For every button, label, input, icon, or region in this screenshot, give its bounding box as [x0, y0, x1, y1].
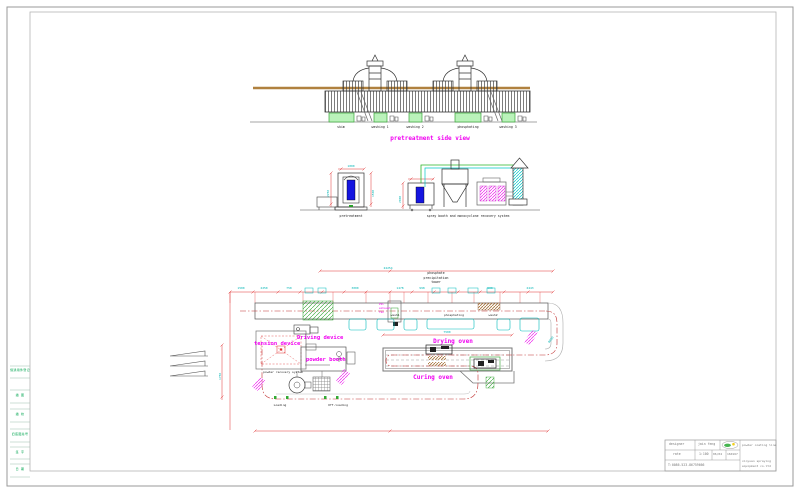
- dimension-lines: [221, 270, 555, 433]
- exhaust-unit-b: [433, 55, 497, 91]
- dim-1500: 1500: [372, 190, 375, 197]
- burner-right: [470, 357, 500, 370]
- brown-bridge: [478, 303, 500, 310]
- dim-1000: 1000: [347, 165, 354, 168]
- tank-label-washing1: washing 1: [371, 126, 388, 129]
- powder-recovery-system: [289, 371, 330, 393]
- designer-label: designer: [669, 443, 684, 446]
- sheet-frame: [7, 7, 793, 486]
- pretreatment-tunnel: [325, 91, 530, 112]
- magenta-ramp-left: [252, 377, 266, 391]
- green-tunnel-section: [303, 301, 333, 320]
- tank-label-washing3: washing 3: [499, 126, 516, 129]
- drying-oven-label: Drying oven: [433, 339, 473, 345]
- tank-label-skim: skim: [337, 126, 345, 129]
- dim-row-0: 1500: [237, 287, 244, 290]
- tank-label-phosphating: phosphating: [457, 126, 478, 129]
- pretreatment-label: pretreatment: [339, 215, 362, 218]
- strip-cell-3: 描 校: [16, 413, 25, 416]
- spraybooth-label: spray booth and monocyclone recovery sys…: [427, 215, 510, 218]
- dim-row-2: 750: [286, 287, 291, 290]
- plan-label-wash1: wash1: [390, 314, 399, 317]
- side-view-title: pretreatment side view: [390, 136, 469, 142]
- scale-label: rate: [673, 453, 681, 456]
- burner-top: [426, 345, 452, 354]
- cad-sheet: 借通用件登记 描 图 描 校 旧底图总号 签 字 日 期 designer ja…: [0, 0, 800, 493]
- drawing-linework: [0, 0, 800, 493]
- powder-recovery-label: powder recovery system: [263, 371, 303, 374]
- strip-cell-6: 日 期: [16, 468, 25, 471]
- cyclone: [442, 160, 468, 207]
- designer-name: jain feng: [698, 443, 715, 446]
- side-view-drawing: [250, 55, 537, 122]
- dim-row-5: 998: [419, 287, 424, 290]
- driving-device-label: Driving device: [297, 336, 343, 342]
- project-title: powder coating line: [742, 444, 776, 447]
- powder-booth-label: powder booth: [306, 358, 346, 364]
- scale-value: 1:100: [699, 453, 709, 456]
- elevation-drawings: [300, 158, 540, 211]
- dim-2250: 2250: [327, 190, 330, 197]
- phosphate-tower-line3: tower: [431, 281, 441, 284]
- loading-label: Loading: [274, 404, 287, 407]
- offloading-label: Off-loading: [328, 404, 348, 407]
- flow-arrows: [170, 351, 208, 376]
- company-phone: T:0086-523-86759666: [668, 464, 704, 467]
- magenta-ramp-mid: [336, 369, 350, 385]
- company-logo: [722, 441, 738, 448]
- dim-row-3: 3000: [351, 287, 358, 290]
- oven-block: [383, 345, 514, 388]
- plan-view-drawing: [170, 270, 563, 433]
- sheet-number: 160167: [727, 453, 738, 456]
- strip-cell-2: 描 图: [16, 394, 25, 397]
- strip-cell-4: 旧底图总号: [12, 433, 29, 436]
- strip-cell-1: 借通用件登记: [10, 369, 30, 372]
- pvc-label-3: fan: [379, 311, 384, 314]
- spraybooth-elevation: [402, 158, 529, 211]
- dim-overall-top: 24254: [383, 267, 392, 270]
- filter-unit: [477, 178, 513, 205]
- curing-oven-label: Curing oven: [413, 375, 453, 381]
- date-value: 06/04: [713, 453, 722, 456]
- tank-label-washing2: washing 2: [406, 126, 423, 129]
- tension-device-label: tension device: [254, 342, 300, 348]
- dim-left-vertical: 1750: [219, 373, 222, 380]
- exhaust-unit-a: [343, 55, 407, 91]
- duct-cyan: [425, 168, 514, 187]
- dim-oven-length: 7500: [443, 331, 450, 334]
- dim-row-7: 2443: [526, 287, 533, 290]
- dim-row-6: 900: [487, 287, 492, 290]
- pretreatment-elevation: [317, 168, 373, 211]
- dim-row-1: 2250: [260, 287, 267, 290]
- right-loop: [512, 303, 563, 361]
- plan-label-phosphating: phosphating: [444, 314, 464, 317]
- company-name-2: equipment co.ltd: [742, 465, 771, 468]
- dim-2000: 2000: [399, 196, 402, 203]
- plan-label-wash2: wash2: [488, 314, 497, 317]
- dim-row-4: 1478: [396, 287, 403, 290]
- strip-cell-5: 签 字: [16, 451, 25, 454]
- company-name-1: xinyuan spraying: [742, 460, 771, 463]
